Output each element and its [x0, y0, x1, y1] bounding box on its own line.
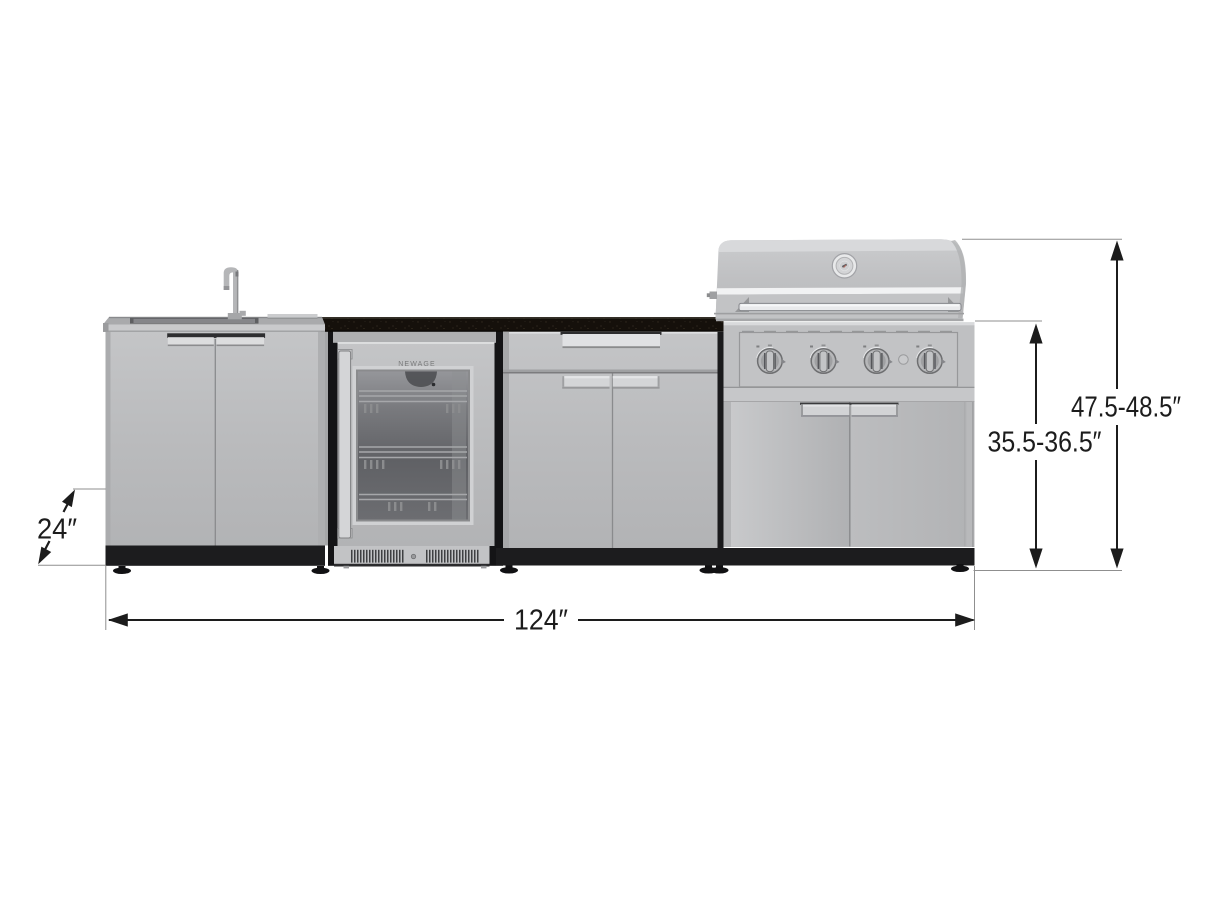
svg-text:124″: 124″: [514, 605, 568, 637]
svg-text:47.5-48.5″: 47.5-48.5″: [1071, 392, 1181, 424]
svg-text:24″: 24″: [37, 514, 77, 546]
svg-text:35.5-36.5″: 35.5-36.5″: [988, 427, 1102, 459]
